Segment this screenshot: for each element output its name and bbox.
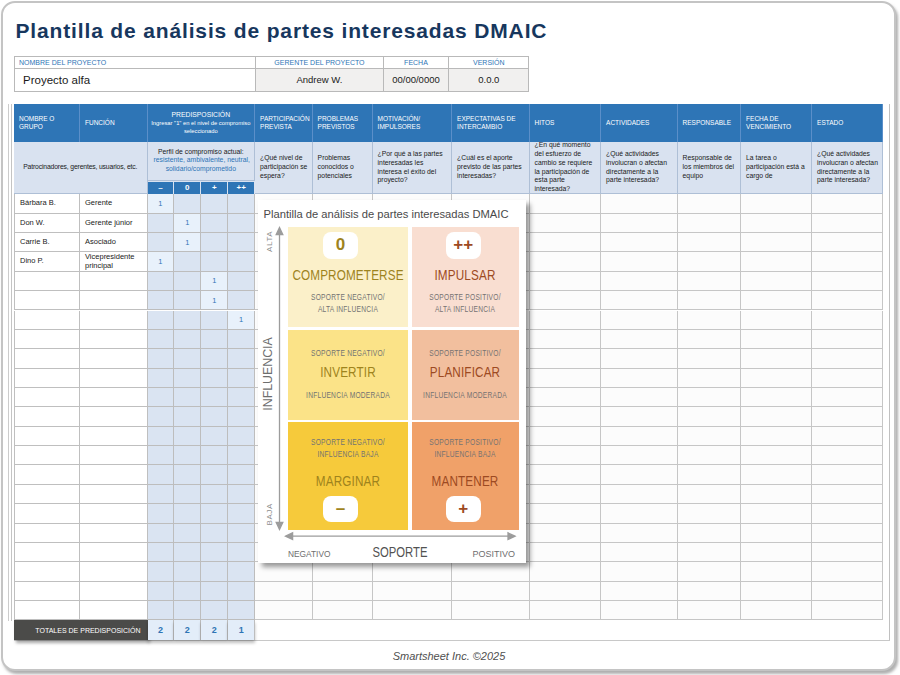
svg-text:INFLUENCIA: INFLUENCIA xyxy=(261,337,275,411)
svg-text:ALTA: ALTA xyxy=(265,231,274,252)
svg-text:NEGATIVO: NEGATIVO xyxy=(288,549,331,559)
svg-text:BAJA: BAJA xyxy=(265,503,274,525)
svg-text:POSITIVO: POSITIVO xyxy=(473,549,516,559)
svg-text:SOPORTE: SOPORTE xyxy=(373,544,428,560)
